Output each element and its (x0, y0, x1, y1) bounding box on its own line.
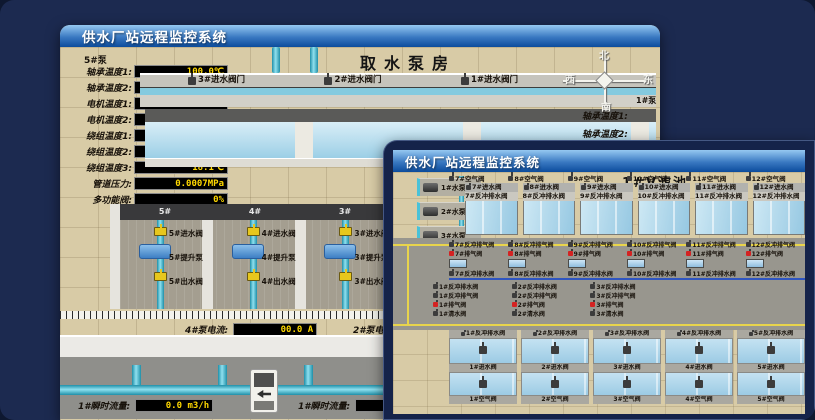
inlet-valve-icon[interactable] (551, 346, 559, 354)
backwash-air-valve[interactable]: 8#反冲排气阀 (508, 240, 567, 249)
pump-room-wall (110, 204, 120, 309)
pipe-stub (304, 365, 313, 387)
valve-icon (512, 311, 517, 316)
backwash-drain-valve-label: 9#反冲排水阀 (574, 269, 613, 278)
inlet-valve-icon[interactable] (695, 346, 703, 354)
valve-label: 2#进水阀门 (334, 73, 381, 85)
backwash-drain-label: 10#反冲排水阀 (638, 192, 685, 200)
valve-icon (581, 185, 586, 190)
cell-water (638, 201, 691, 235)
backwash-drain-valve-label: 12#反冲排水阀 (752, 269, 795, 278)
valve-cluster: 1#反冲排水阀 1#反冲排气阀 1#排气阀 (433, 282, 506, 318)
valve-icon-red (433, 302, 438, 307)
cell-water (593, 372, 661, 396)
exhaust-valve[interactable]: 1#排气阀 (433, 300, 506, 309)
cell-water (695, 201, 748, 235)
valve-icon (686, 176, 691, 181)
valve-icon (677, 332, 681, 336)
right-readout-label: 轴承温度2: (582, 127, 628, 140)
valve-cluster: 11#反冲排气阀 11#排气阀 11#反冲排水阀 (686, 240, 745, 278)
inlet-valve-label: 1#进水阀 (469, 364, 496, 372)
backwash-drain-label: 2#反冲排水阀 (538, 330, 577, 338)
valve-icon (508, 271, 513, 276)
clean-water-valve[interactable]: 2#清水阀 (512, 309, 585, 318)
backwash-air-valve[interactable]: 12#反冲排气阀 (746, 240, 805, 249)
exhaust-valve-label: 8#排气阀 (514, 249, 541, 258)
air-valve-strip: 4#空气阀 (665, 396, 733, 404)
filter-cell[interactable]: 11#进水阀 11#反冲排水阀 (695, 183, 748, 235)
air-valve[interactable]: 10#空气阀 (627, 173, 686, 183)
valve-icon (627, 176, 632, 181)
filter-cell[interactable]: 8#进水阀 8#反冲排水阀 (523, 183, 576, 235)
inlet-valve-label: 4#进水阀 (262, 228, 296, 239)
pipe-stub (132, 365, 141, 387)
inlet-valve-bar: 7#进水阀 (465, 183, 518, 192)
backwash-air-valve[interactable]: 10#反冲排气阀 (627, 240, 686, 249)
readout-row: 管道压力: 0.0007MPa (62, 177, 238, 190)
cell-water (521, 338, 589, 364)
air-valve-icon[interactable] (767, 380, 775, 388)
backwash-tank (686, 259, 704, 268)
air-valve-label: 5#空气阀 (757, 396, 784, 404)
intake-pipe (272, 47, 280, 73)
valve-cluster: 2#反冲排水阀 2#反冲排气阀 2#排气阀 (512, 282, 585, 318)
clean-water-pipe (449, 278, 805, 280)
valve-icon-red (508, 251, 513, 256)
valve-icon (449, 271, 454, 276)
cell-water (665, 338, 733, 364)
backwash-drain-bar: 10#反冲排水阀 (638, 192, 691, 201)
air-valve-strip: 5#空气阀 (737, 396, 805, 404)
inlet-gate-valve-row: 3#进水阀门 2#进水阀门 1#进水阀门 (188, 73, 518, 85)
camera-body (254, 373, 274, 387)
backwash-drain-label: 4#反冲排水阀 (682, 330, 721, 338)
air-valve[interactable]: 12#空气阀 (746, 173, 805, 183)
backwash-drain-valve[interactable]: 7#反冲排水阀 (449, 269, 508, 278)
air-valve-label: 3#空气阀 (613, 396, 640, 404)
valve-icon (696, 185, 701, 190)
backwash-drain-valve-label: 1#反冲排水阀 (439, 282, 478, 291)
camera-base (254, 401, 274, 410)
exhaust-valve-label: 9#排气阀 (574, 249, 601, 258)
backwash-tank (449, 259, 467, 268)
filter-cell[interactable]: 10#进水阀 10#反冲排水阀 (638, 183, 691, 235)
outlet-valve-icon[interactable] (339, 272, 352, 281)
backwash-drain-bar: 11#反冲排水阀 (695, 192, 748, 201)
inlet-valve-bar: 11#进水阀 (695, 183, 748, 192)
exhaust-valve-label: 2#排气阀 (518, 300, 545, 309)
compass-star-icon (595, 71, 613, 89)
backwash-drain-valve-label: 2#反冲排水阀 (518, 282, 557, 291)
valve-icon (524, 185, 529, 190)
inlet-valve-icon[interactable] (623, 346, 631, 354)
pipe-stub (218, 365, 227, 387)
valve-icon (449, 242, 454, 247)
backwash-air-valve[interactable]: 3#反冲排气阀 (590, 291, 663, 300)
cell-water (593, 338, 661, 364)
lift-pump-icon[interactable] (324, 244, 356, 259)
inlet-valve-label: 4#进水阀 (685, 364, 712, 372)
backwash-drain-label: 9#反冲排水阀 (580, 192, 622, 200)
lift-pump-icon[interactable] (139, 244, 171, 259)
backwash-drain-strip: 3#反冲排水阀 (593, 330, 661, 338)
backwash-drain-strip: 5#反冲排水阀 (737, 330, 805, 338)
valve-icon (568, 242, 573, 247)
backwash-tank (746, 259, 764, 268)
valve-icon-red (590, 302, 595, 307)
right-pump-group-label: 1#泵 (636, 95, 656, 106)
air-valve-icon[interactable] (479, 380, 487, 388)
inlet-valve-label: 5#进水阀 (169, 228, 203, 239)
pump-bay: 4#进水阀 4#提升泵 4#出水阀 (213, 220, 306, 309)
air-valve-label: 10#空气阀 (633, 173, 667, 183)
exhaust-valve[interactable]: 11#排气阀 (686, 249, 745, 258)
water-pump-label: 1#水泵 (441, 183, 466, 193)
backwash-drain-label: 11#反冲排水阀 (695, 192, 742, 200)
backwash-drain-label: 7#反冲排水阀 (465, 192, 507, 200)
backwash-air-valve-label: 11#反冲排气阀 (692, 240, 735, 249)
flow-readout: 1#瞬时流量: 0.0 m3/h (78, 399, 213, 412)
camera-icon[interactable] (250, 369, 278, 413)
filter-pool-scene: 1#V滤池 1#水泵 2#水泵 (393, 172, 805, 414)
valve-icon (590, 311, 595, 316)
lift-pump-label: 5#提升泵 (169, 252, 203, 263)
inlet-valve-strip: 3#进水阀 (593, 364, 661, 372)
filter-cell-column[interactable]: 3#反冲排水阀 3#进水阀 (593, 330, 661, 404)
air-valve-label-row: 7#空气阀 8#空气阀 9#空气阀 (449, 173, 805, 183)
exhaust-valve-label: 11#排气阀 (692, 249, 723, 258)
readout-label: 管道压力: (62, 177, 134, 190)
compass-east: 东 (643, 71, 653, 86)
inlet-valve-strip: 4#进水阀 (665, 364, 733, 372)
valve-icon-red (568, 251, 573, 256)
upper-valve-clusters: 7#反冲排气阀 7#排气阀 7#反冲排水阀 (449, 240, 805, 278)
valve-icon-red (746, 251, 751, 256)
inlet-valve-label: 10#进水阀 (645, 183, 679, 192)
backwash-air-valve-label: 12#反冲排气阀 (752, 240, 795, 249)
valve-icon (461, 332, 465, 336)
desktop: 供水厂站远程监控系统 取水泵房 5#泵 轴承温度1: 100.0℃ 轴承温度2:… (0, 0, 815, 420)
readout-label: 绕组温度2: (62, 145, 134, 158)
readout-label: 绕组温度3: (62, 161, 134, 174)
backwash-drain-valve[interactable]: 10#反冲排水阀 (627, 269, 686, 278)
readout-value: 0.0007MPa (134, 177, 228, 190)
backwash-drain-valve[interactable]: 12#反冲排水阀 (746, 269, 805, 278)
exhaust-valve[interactable]: 7#排气阀 (449, 249, 508, 258)
camera-valve (257, 390, 271, 398)
backwash-tank (568, 259, 586, 268)
backwash-drain-bar: 9#反冲排水阀 (580, 192, 633, 201)
inlet-valve-bar: 9#进水阀 (580, 183, 633, 192)
readout-value: 0.0 m3/h (135, 399, 213, 412)
air-valve-icon[interactable] (695, 380, 703, 388)
valve-icon-red (627, 251, 632, 256)
valve-icon-red (512, 302, 517, 307)
backwash-drain-valve[interactable]: 8#反冲排水阀 (508, 269, 567, 278)
valve-icon (746, 242, 751, 247)
valve-icon (449, 176, 454, 181)
filter-cell-column[interactable]: 4#反冲排水阀 4#进水阀 (665, 330, 733, 404)
valve-cluster: 3#反冲排水阀 3#反冲排气阀 3#排气阀 (590, 282, 663, 318)
valve-icon (639, 185, 644, 190)
backwash-drain-strip: 4#反冲排水阀 (665, 330, 733, 338)
readout-label: 电机温度2: (62, 113, 134, 126)
filter-cell-column[interactable]: 5#反冲排水阀 5#进水阀 (737, 330, 805, 404)
valve-icon-red (686, 251, 691, 256)
valve-icon (746, 271, 751, 276)
water-pump-icon (423, 207, 438, 216)
backwash-drain-label: 8#反冲排水阀 (523, 192, 565, 200)
air-valve-icon[interactable] (551, 380, 559, 388)
outlet-valve-label: 5#出水阀 (169, 276, 203, 287)
air-valve-label: 4#空气阀 (685, 396, 712, 404)
inlet-valve-strip: 5#进水阀 (737, 364, 805, 372)
inlet-valve-label: 3#进水阀 (613, 364, 640, 372)
air-valve-label: 9#空气阀 (574, 173, 603, 183)
clean-water-valve-label: 2#清水阀 (518, 309, 545, 318)
inlet-valve-label: 9#进水阀 (587, 183, 616, 192)
backwash-air-valve-label: 10#反冲排气阀 (633, 240, 676, 249)
backwash-air-valve[interactable]: 11#反冲排气阀 (686, 240, 745, 249)
inlet-valve-icon[interactable] (339, 227, 352, 236)
exhaust-valve[interactable]: 3#排气阀 (590, 300, 663, 309)
exhaust-valve-label: 3#排气阀 (596, 300, 623, 309)
backwash-drain-strip: 1#反冲排水阀 (449, 330, 517, 338)
readout-label: 电机温度1: (62, 97, 134, 110)
cell-water (580, 201, 633, 235)
backwash-drain-label: 1#反冲排水阀 (466, 330, 505, 338)
readout-label: 轴承温度2: (62, 81, 134, 94)
clean-water-valve[interactable]: 1#清水阀 (433, 309, 506, 318)
backwash-drain-bar: 7#反冲排水阀 (465, 192, 518, 201)
inlet-valve-strip: 1#进水阀 (449, 364, 517, 372)
valve-icon (568, 176, 573, 181)
water-pump-label: 2#水泵 (441, 207, 466, 217)
backwash-drain-valve[interactable]: 3#反冲排水阀 (590, 282, 663, 291)
readout-label: 绕组温度1: (62, 129, 134, 142)
valve-icon (466, 185, 471, 190)
valve-icon (746, 176, 751, 181)
valve-icon (590, 293, 595, 298)
backwash-air-valve[interactable]: 1#反冲排气阀 (433, 291, 506, 300)
pipe-gallery: 7#反冲排气阀 7#排气阀 7#反冲排水阀 (393, 238, 805, 330)
readout-label: 轴承温度1: (62, 65, 134, 78)
backwash-drain-label: 5#反冲排水阀 (754, 330, 793, 338)
front-window-title: 供水厂站远程监控系统 (405, 152, 540, 171)
valve-icon (433, 284, 438, 289)
air-valve-label: 1#空气阀 (469, 396, 496, 404)
lower-valve-clusters: 1#反冲排水阀 1#反冲排气阀 1#排气阀 (433, 282, 663, 318)
filter-cell[interactable]: 12#进水阀 12#反冲排水阀 (753, 183, 806, 235)
scene-title-intake-pump-house: 取水泵房 (318, 50, 498, 74)
backwash-drain-label: 3#反冲排水阀 (610, 330, 649, 338)
outlet-valve-icon[interactable] (154, 272, 167, 281)
backwash-drain-valve-label: 10#反冲排水阀 (633, 269, 676, 278)
air-valve-strip: 3#空气阀 (593, 396, 661, 404)
bay-number: 3# (300, 204, 390, 220)
backwash-drain-valve-label: 3#反冲排水阀 (596, 282, 635, 291)
clean-water-valve-label: 3#清水阀 (596, 309, 623, 318)
lower-filter-cells: 1#反冲排水阀 1#进水阀 (449, 330, 805, 404)
valve-icon (508, 242, 513, 247)
inlet-valve-bar: 8#进水阀 (523, 183, 576, 192)
valve-label: 3#进水阀门 (198, 73, 245, 85)
valve-icon (749, 332, 753, 336)
backwash-drain-valve-label: 8#反冲排水阀 (514, 269, 553, 278)
filter-cell[interactable]: 7#进水阀 7#反冲排水阀 (465, 183, 518, 235)
valve-icon (627, 242, 632, 247)
inlet-valve-label: 5#进水阀 (757, 364, 784, 372)
valve-cluster: 7#反冲排气阀 7#排气阀 7#反冲排水阀 (449, 240, 508, 278)
inlet-valve-strip: 2#进水阀 (521, 364, 589, 372)
inlet-valve-label: 11#进水阀 (702, 183, 736, 192)
front-window[interactable]: 供水厂站远程监控系统 1#V滤池 1#水泵 (383, 140, 815, 420)
valve-cluster: 10#反冲排气阀 10#排气阀 10#反冲排水阀 (627, 240, 686, 278)
backwash-air-valve-label: 9#反冲排气阀 (574, 240, 613, 249)
air-valve[interactable]: 11#空气阀 (686, 173, 745, 183)
bay-number: 5# (120, 204, 210, 220)
intake-pipe (310, 47, 318, 73)
valve-icon-red (449, 251, 454, 256)
backwash-tank (508, 259, 526, 268)
backwash-air-valve-label: 1#反冲排气阀 (439, 291, 478, 300)
cell-water (465, 201, 518, 235)
lift-pump-label: 4#提升泵 (262, 252, 296, 263)
backwash-drain-valve[interactable]: 9#反冲排水阀 (568, 269, 627, 278)
exhaust-valve[interactable]: 12#排气阀 (746, 249, 805, 258)
valve-icon (188, 77, 196, 85)
inlet-gate-valve[interactable]: 1#进水阀门 (461, 73, 518, 85)
valve-icon (754, 185, 759, 190)
valve-icon (686, 242, 691, 247)
inlet-valve-icon[interactable] (154, 227, 167, 236)
backwash-drain-valve[interactable]: 2#反冲排水阀 (512, 282, 585, 291)
valve-icon (508, 176, 513, 181)
backwash-drain-bar: 8#反冲排水阀 (523, 192, 576, 201)
back-window-title: 供水厂站远程监控系统 (82, 26, 227, 46)
valve-cluster: 8#反冲排气阀 8#排气阀 8#反冲排水阀 (508, 240, 567, 278)
filter-cell[interactable]: 9#进水阀 9#反冲排水阀 (580, 183, 633, 235)
cell-water (523, 201, 576, 235)
inlet-valve-icon[interactable] (247, 227, 260, 236)
right-readout-label: 轴承温度1: (582, 109, 628, 122)
cell-water (737, 338, 805, 364)
backwash-air-valve-label: 8#反冲排气阀 (514, 240, 553, 249)
valve-icon (605, 332, 609, 336)
inlet-valve-label: 7#进水阀 (472, 183, 501, 192)
backwash-air-valve[interactable]: 2#反冲排气阀 (512, 291, 585, 300)
cell-water (449, 338, 517, 364)
inlet-valve-label: 2#进水阀 (541, 364, 568, 372)
cell-water (665, 372, 733, 396)
inlet-gate-valve[interactable]: 2#进水阀门 (324, 73, 381, 85)
backwash-air-valve-label: 3#反冲排气阀 (596, 291, 635, 300)
exhaust-valve-label: 7#排气阀 (455, 249, 482, 258)
air-valve[interactable]: 7#空气阀 (449, 173, 508, 183)
backwash-drain-valve-label: 7#反冲排水阀 (455, 269, 494, 278)
inlet-valve-bar: 12#进水阀 (753, 183, 806, 192)
valve-icon (568, 271, 573, 276)
exhaust-valve-label: 10#排气阀 (633, 249, 664, 258)
inlet-valve-icon[interactable] (479, 346, 487, 354)
air-valve-strip: 1#空气阀 (449, 396, 517, 404)
air-valve-label: 2#空气阀 (541, 396, 568, 404)
backwash-air-valve[interactable]: 7#反冲排气阀 (449, 240, 508, 249)
valve-icon (533, 332, 537, 336)
air-valve-label: 12#空气阀 (752, 173, 786, 183)
outlet-valve-icon[interactable] (247, 272, 260, 281)
backwash-air-valve[interactable]: 9#反冲排气阀 (568, 240, 627, 249)
valve-icon (590, 284, 595, 289)
water-pump-icon (423, 183, 438, 192)
cell-water (753, 201, 806, 235)
air-valve[interactable]: 9#空气阀 (568, 173, 627, 183)
compass-north: 北 (599, 47, 609, 62)
exhaust-valve[interactable]: 8#排气阀 (508, 249, 567, 258)
exhaust-valve[interactable]: 10#排气阀 (627, 249, 686, 258)
backwash-drain-strip: 2#反冲排水阀 (521, 330, 589, 338)
outlet-valve-label: 4#出水阀 (262, 276, 296, 287)
air-valve[interactable]: 8#空气阀 (508, 173, 567, 183)
air-valve-strip: 2#空气阀 (521, 396, 589, 404)
backwash-drain-bar: 12#反冲排水阀 (753, 192, 806, 201)
valve-icon (433, 311, 438, 316)
pump-bay: 5#进水阀 5#提升泵 5#出水阀 (120, 220, 213, 309)
upper-filter-cells: 7#进水阀 7#反冲排水阀 8#进水阀 (465, 183, 805, 235)
air-pipe (393, 324, 805, 326)
cell-water (737, 372, 805, 396)
readout-label: 1#瞬时流量: (298, 399, 352, 412)
cell-water (521, 372, 589, 396)
cell-water (449, 372, 517, 396)
backwash-air-valve-label: 2#反冲排气阀 (518, 291, 557, 300)
inlet-valve-label: 8#进水阀 (530, 183, 559, 192)
backwash-drain-valve-label: 11#反冲排水阀 (692, 269, 735, 278)
inlet-gate-valve[interactable]: 3#进水阀门 (188, 73, 245, 85)
air-valve-icon[interactable] (623, 380, 631, 388)
valve-icon (627, 271, 632, 276)
inlet-valve-label: 12#进水阀 (760, 183, 794, 192)
backwash-drain-valve[interactable]: 1#反冲排水阀 (433, 282, 506, 291)
backwash-air-valve-label: 7#反冲排气阀 (455, 240, 494, 249)
exhaust-valve-label: 12#排气阀 (752, 249, 783, 258)
filter-cell-column[interactable]: 2#反冲排水阀 2#进水阀 (521, 330, 589, 404)
backwash-drain-valve[interactable]: 11#反冲排水阀 (686, 269, 745, 278)
inlet-valve-icon[interactable] (767, 346, 775, 354)
valve-icon (433, 293, 438, 298)
clean-water-valve[interactable]: 3#清水阀 (590, 309, 663, 318)
bay-number: 4# (210, 204, 300, 220)
inlet-valve-bar: 10#进水阀 (638, 183, 691, 192)
compass-west: 西 (565, 71, 575, 86)
valve-cluster: 9#反冲排气阀 9#排气阀 9#反冲排水阀 (568, 240, 627, 278)
valve-icon (461, 77, 469, 85)
back-window-titlebar[interactable]: 供水厂站远程监控系统 (60, 25, 660, 47)
filter-cell-column[interactable]: 1#反冲排水阀 1#进水阀 (449, 330, 517, 404)
exhaust-valve-label: 1#排气阀 (439, 300, 466, 309)
valve-label: 1#进水阀门 (471, 73, 518, 85)
backwash-drain-label: 12#反冲排水阀 (753, 192, 800, 200)
valve-icon (512, 284, 517, 289)
readout-label: 1#瞬时流量: (78, 399, 132, 412)
exhaust-valve[interactable]: 2#排气阀 (512, 300, 585, 309)
backwash-tank (627, 259, 645, 268)
exhaust-valve[interactable]: 9#排气阀 (568, 249, 627, 258)
air-valve-label: 7#空气阀 (455, 173, 484, 183)
front-window-titlebar[interactable]: 供水厂站远程监控系统 (393, 150, 805, 172)
lift-pump-icon[interactable] (232, 244, 264, 259)
air-pipe-riser (407, 244, 409, 324)
